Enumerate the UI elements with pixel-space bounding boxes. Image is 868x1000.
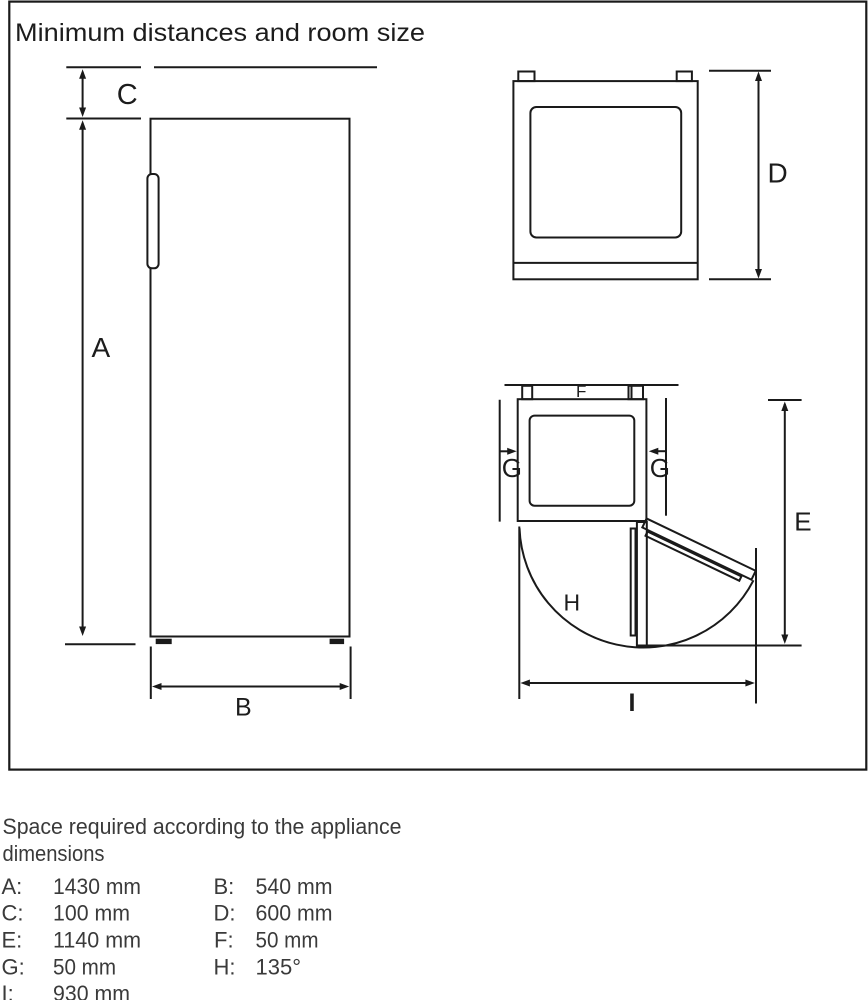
svg-text:100 mm: 100 mm xyxy=(53,901,130,926)
svg-text:H:: H: xyxy=(214,954,236,979)
svg-text:E: E xyxy=(794,507,811,537)
svg-text:D: D xyxy=(768,158,788,189)
svg-text:600 mm: 600 mm xyxy=(256,901,333,926)
svg-text:1430 mm: 1430 mm xyxy=(53,874,141,899)
svg-text:C: C xyxy=(117,79,138,111)
svg-text:D:: D: xyxy=(214,901,236,926)
svg-text:F: F xyxy=(576,382,586,401)
svg-text:F:: F: xyxy=(214,928,234,953)
svg-text:Minimum distances and room siz: Minimum distances and room size xyxy=(15,19,425,47)
svg-text:A:: A: xyxy=(2,874,23,899)
svg-text:A: A xyxy=(92,332,111,363)
svg-text:B:: B: xyxy=(214,874,235,899)
svg-text:135°: 135° xyxy=(256,954,302,979)
svg-text:dimensions: dimensions xyxy=(3,841,105,866)
svg-text:H: H xyxy=(564,589,581,615)
svg-text:1140 mm: 1140 mm xyxy=(53,928,141,953)
svg-text:C:: C: xyxy=(2,901,24,926)
svg-text:930 mm: 930 mm xyxy=(53,981,130,1000)
svg-text:G:: G: xyxy=(2,954,25,979)
svg-text:G: G xyxy=(650,453,670,483)
svg-text:50 mm: 50 mm xyxy=(53,954,116,979)
svg-text:50 mm: 50 mm xyxy=(256,928,319,953)
svg-text:I: I xyxy=(629,689,636,717)
svg-text:Space required according to th: Space required according to the applianc… xyxy=(3,814,402,839)
svg-text:E:: E: xyxy=(2,928,23,953)
svg-text:I:: I: xyxy=(2,981,14,1000)
svg-text:G: G xyxy=(502,453,522,483)
svg-text:540 mm: 540 mm xyxy=(256,874,333,899)
svg-text:B: B xyxy=(235,694,252,722)
